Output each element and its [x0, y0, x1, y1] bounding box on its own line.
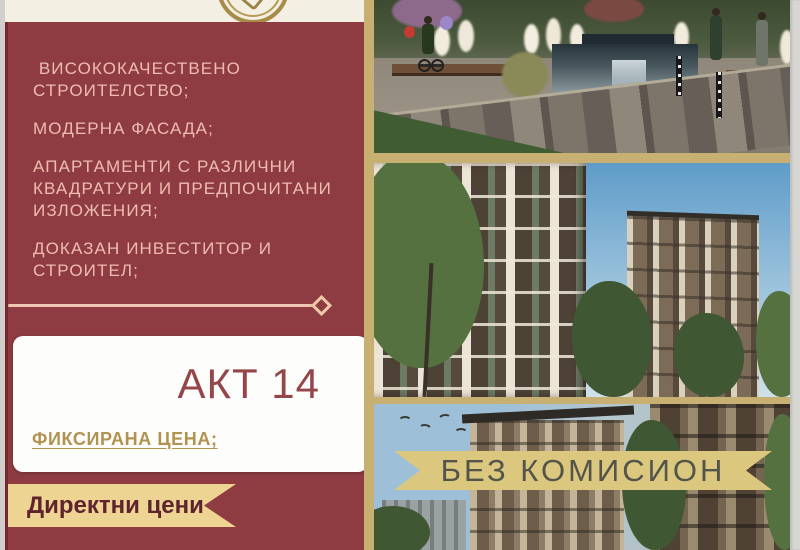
bird-icon: [398, 416, 412, 427]
person-body: [710, 16, 722, 60]
ornamental-grass: [502, 52, 548, 98]
pampas-plume: [434, 26, 450, 56]
bollard-light: [716, 72, 722, 118]
features-panel: ВИСОКОКАЧЕСТВЕНО СТРОИТЕЛСТВО; МОДЕРНА Ф…: [5, 22, 364, 550]
pampas-plume: [524, 24, 539, 54]
real-estate-flyer: ВИСОКОКАЧЕСТВЕНО СТРОИТЕЛСТВО; МОДЕРНА Ф…: [5, 0, 790, 550]
courtyard-photo: [374, 0, 790, 153]
buildings-photo: [374, 163, 790, 397]
diamond-icon: [311, 295, 332, 316]
tree: [674, 313, 744, 397]
feature-quality: ВИСОКОКАЧЕСТВЕНО СТРОИТЕЛСТВО;: [33, 58, 365, 102]
page-edge-right: [790, 0, 800, 550]
header-strip: [5, 0, 364, 22]
purple-balloon: [440, 16, 453, 30]
pampas-plume: [458, 20, 474, 52]
photo-panel: БЕЗ КОМИСИОН: [364, 0, 790, 550]
child-tricycle: [418, 54, 444, 67]
no-commission-banner: БЕЗ КОМИСИОН: [394, 451, 772, 490]
direct-prices-label: Директни цени: [8, 484, 236, 527]
person-body: [422, 24, 434, 54]
left-panel: ВИСОКОКАЧЕСТВЕНО СТРОИТЕЛСТВО; МОДЕРНА Ф…: [5, 0, 364, 550]
feature-facade: МОДЕРНА ФАСАДА;: [33, 118, 365, 140]
feature-apartments: АПАРТАМЕНТИ С РАЗЛИЧНИ КВАДРАТУРИ И ПРЕД…: [33, 156, 365, 222]
tricycle-wheel: [431, 59, 444, 72]
direct-prices-ribbon: Директни цени: [8, 484, 236, 527]
bird-icon: [454, 428, 468, 439]
bollard-light: [676, 56, 682, 96]
person-head: [712, 8, 720, 16]
divider-line: [8, 304, 320, 307]
street-view-photo: БЕЗ КОМИСИОН: [374, 404, 790, 550]
no-commission-label: БЕЗ КОМИСИОН: [441, 453, 726, 489]
red-balloon: [404, 26, 415, 38]
person-body: [756, 20, 768, 66]
feature-list: ВИСОКОКАЧЕСТВЕНО СТРОИТЕЛСТВО; МОДЕРНА Ф…: [33, 58, 365, 298]
act14-card: АКТ 14 ФИКСИРАНА ЦЕНА;: [13, 336, 368, 472]
feature-investor: ДОКАЗАН ИНВЕСТИТОР И СТРОИТЕЛ;: [33, 238, 365, 282]
pampas-plume: [780, 30, 790, 64]
person-head: [424, 16, 432, 24]
logo-monogram-icon: [228, 0, 276, 11]
fixed-price-link: ФИКСИРАНА ЦЕНА;: [32, 429, 218, 450]
person-head: [758, 12, 766, 20]
tricycle-wheel: [418, 59, 431, 72]
act14-title: АКТ 14: [177, 360, 320, 408]
company-logo-icon: [217, 0, 289, 22]
